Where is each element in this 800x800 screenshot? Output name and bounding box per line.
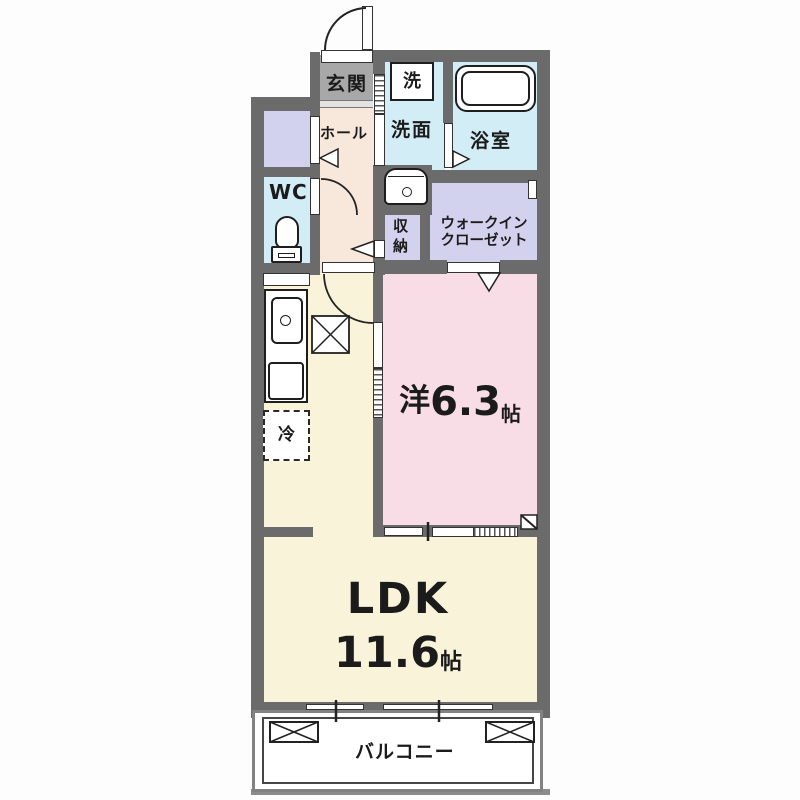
wall-genkan-left: [310, 52, 320, 107]
wall-closet-bottom-b: [500, 260, 537, 274]
entrance-door-leaf: [362, 6, 373, 50]
kitchen-counter: [264, 289, 308, 403]
label-ldk-size-value: 11.6: [334, 628, 440, 680]
label-senmen: 洗面: [391, 119, 433, 142]
label-bath: 浴室: [470, 130, 512, 153]
wall-hall-left-a: [310, 107, 320, 116]
bedroom-ldk-window-2: [432, 527, 474, 537]
label-wic-line2: クローゼット: [441, 233, 528, 250]
shuno-door-gap: [374, 240, 385, 258]
wall-closet-bottom-a: [378, 260, 447, 274]
label-wc: WC: [269, 180, 308, 204]
floor-plan: 洗 冷: [0, 0, 800, 800]
hall-ldk-door-leaf: [322, 262, 375, 273]
basin-drain: [402, 187, 412, 197]
wall-notch-window: [528, 180, 537, 199]
bedroom-ldk-window-2-rail: [473, 527, 518, 537]
label-ldk-name: LDK: [298, 574, 498, 626]
label-bedroom-unit: 帖: [501, 402, 521, 426]
label-bedroom-prefix: 洋: [399, 383, 430, 420]
wall-senmen-bath-sep: [443, 62, 453, 123]
senmen-folding-door: [374, 74, 385, 114]
label-wic-line1: ウォークイン: [441, 216, 528, 233]
wall-top-right: [385, 50, 550, 62]
refrigerator-space: 冷: [263, 410, 310, 461]
wall-hall-left-c: [310, 215, 320, 275]
label-balcony: バルコニー: [355, 741, 455, 764]
wic-door-bar: [447, 262, 500, 273]
label-shuno: 収納: [393, 216, 412, 257]
wall-hall-right-low: [373, 215, 385, 240]
wall-right-outer: [537, 50, 550, 713]
hall-senmen-door: [374, 114, 385, 166]
label-genkan: 玄関: [326, 73, 368, 96]
kitchen-stove: [268, 362, 304, 400]
wall-below-wc: [263, 263, 310, 273]
wall-top-left: [251, 97, 318, 111]
wall-left-outer: [251, 97, 264, 713]
label-bedroom: 洋6.3帖: [382, 378, 538, 426]
label-bedroom-size: 6.3: [430, 378, 501, 426]
entry-storage-door-gap: [310, 116, 320, 164]
wall-below-bath: [430, 170, 537, 183]
basin-rim: [388, 176, 424, 177]
label-ldk-size: 11.6帖: [288, 628, 508, 680]
kitchen-faucet: [280, 315, 291, 326]
room-entry-storage: [263, 111, 310, 167]
washer-pan: 洗: [390, 62, 434, 101]
label-ldk-size-unit: 帖: [440, 650, 462, 679]
toilet-bowl: [275, 216, 299, 249]
entrance-threshold: [321, 50, 373, 63]
wc-wall-opening: [263, 273, 310, 286]
wall-hall-left-b: [310, 164, 320, 178]
refrigerator-label: 冷: [278, 425, 295, 445]
wall-kitchen-stub: [264, 527, 313, 537]
wall-bedroom-left-a: [373, 274, 383, 322]
toilet-tank: [271, 246, 302, 263]
bedroom-ldk-window-1: [384, 527, 423, 536]
label-wic: ウォークイン クローゼット: [428, 216, 540, 251]
bathtub-inner: [461, 71, 530, 106]
genkan-step: [320, 100, 373, 108]
toilet-tank-line: [278, 253, 295, 258]
bath-door-gap: [444, 123, 453, 168]
wall-below-entry-storage: [263, 167, 310, 177]
entrance-door-arc: [325, 8, 366, 50]
bathtub: [455, 65, 536, 112]
bedroom-slide-door-a: [373, 322, 383, 368]
wall-bedroom-left-b: [373, 418, 383, 537]
wall-genkan-right: [373, 50, 385, 74]
wash-basin: [384, 168, 428, 205]
label-hall: ホール: [320, 124, 368, 142]
washer-label: 洗: [403, 71, 421, 93]
wc-door-gap: [310, 178, 320, 215]
